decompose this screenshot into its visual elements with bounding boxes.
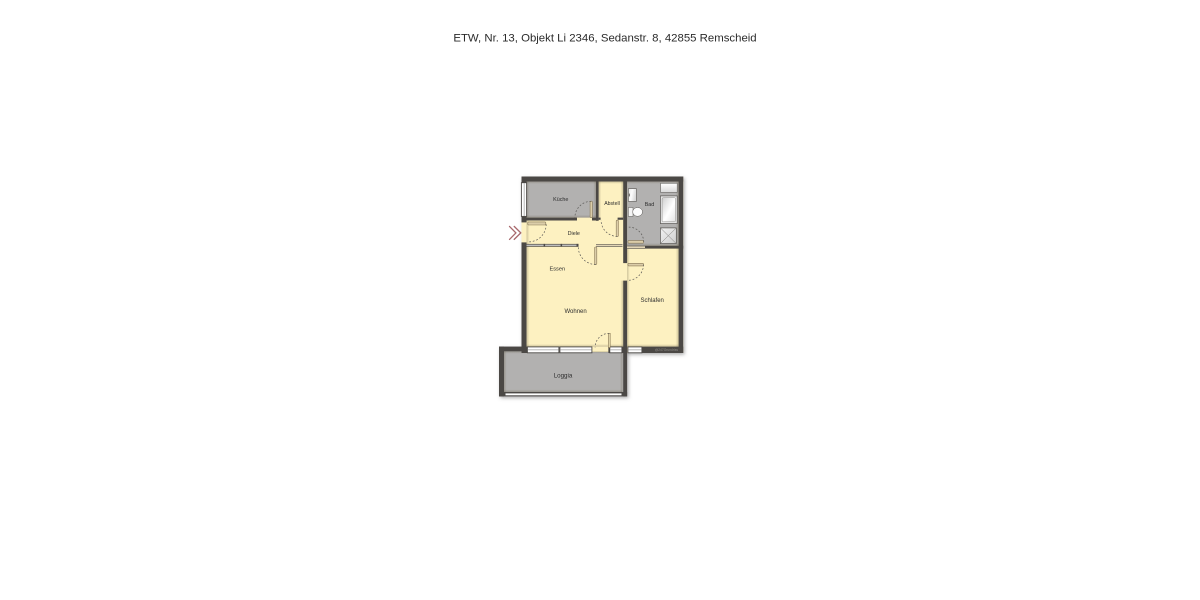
svg-text:Loggia: Loggia	[554, 373, 573, 380]
svg-text:Abstell: Abstell	[604, 201, 620, 207]
svg-text:Essen: Essen	[550, 267, 566, 273]
svg-text:Diele: Diele	[568, 231, 580, 237]
svg-text:ETW, Nr. 13, Objekt Li 2346, S: ETW, Nr. 13, Objekt Li 2346, Sedanstr. 8…	[453, 33, 756, 45]
svg-text:Küche: Küche	[553, 197, 568, 203]
svg-text:Wohnen: Wohnen	[564, 309, 586, 315]
svg-text:@247Grundriss: @247Grundriss	[655, 348, 678, 352]
svg-text:Schlafen: Schlafen	[641, 298, 664, 304]
svg-text:Bad: Bad	[645, 202, 655, 208]
